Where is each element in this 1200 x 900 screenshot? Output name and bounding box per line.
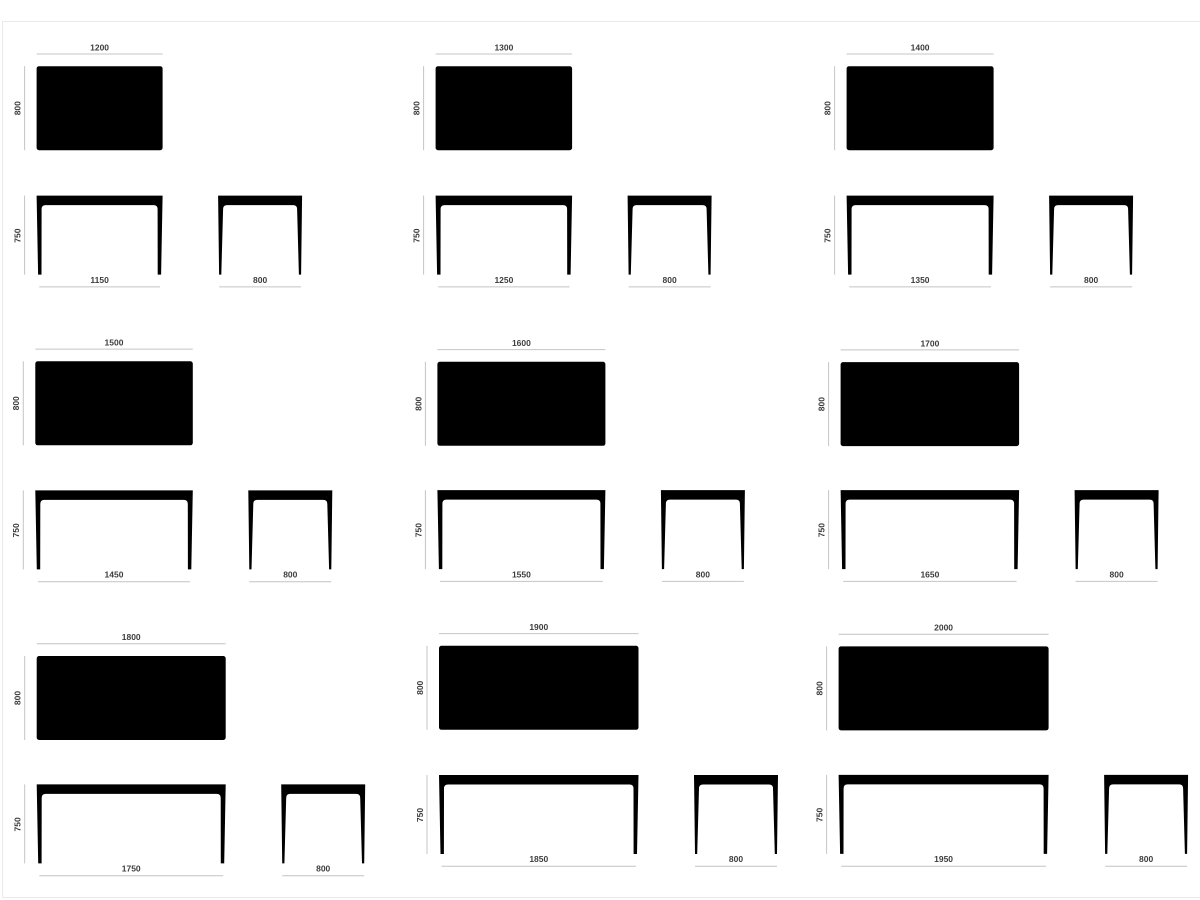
svg-text:750: 750 (412, 228, 422, 242)
svg-text:750: 750 (413, 523, 423, 537)
svg-text:1750: 1750 (122, 864, 141, 874)
svg-text:800: 800 (253, 275, 267, 285)
svg-text:1200: 1200 (90, 42, 109, 52)
svg-text:800: 800 (13, 101, 23, 115)
svg-text:1400: 1400 (911, 42, 930, 52)
svg-text:1900: 1900 (529, 622, 548, 632)
svg-text:800: 800 (415, 680, 425, 694)
svg-text:800: 800 (412, 101, 422, 115)
svg-text:1950: 1950 (934, 854, 953, 864)
svg-text:1500: 1500 (105, 338, 124, 348)
svg-text:800: 800 (696, 569, 710, 579)
svg-text:750: 750 (823, 228, 833, 242)
svg-text:1800: 1800 (122, 632, 141, 642)
svg-text:1650: 1650 (920, 569, 939, 579)
svg-text:2000: 2000 (934, 623, 953, 633)
svg-text:800: 800 (11, 396, 21, 410)
svg-text:800: 800 (13, 691, 23, 705)
svg-text:800: 800 (413, 396, 423, 410)
svg-text:1600: 1600 (512, 338, 531, 348)
svg-text:750: 750 (13, 817, 23, 831)
svg-text:750: 750 (814, 808, 824, 822)
svg-text:1250: 1250 (494, 275, 513, 285)
svg-text:750: 750 (415, 808, 425, 822)
svg-text:800: 800 (729, 854, 743, 864)
svg-text:800: 800 (316, 864, 330, 874)
svg-text:1350: 1350 (911, 275, 930, 285)
svg-text:750: 750 (11, 523, 21, 537)
svg-text:1700: 1700 (920, 338, 939, 348)
svg-text:1850: 1850 (529, 854, 548, 864)
svg-text:1450: 1450 (105, 570, 124, 580)
svg-text:800: 800 (1084, 275, 1098, 285)
svg-text:1150: 1150 (90, 275, 109, 285)
svg-text:800: 800 (817, 397, 827, 411)
svg-text:1300: 1300 (494, 42, 513, 52)
svg-text:800: 800 (823, 101, 833, 115)
svg-text:800: 800 (814, 681, 824, 695)
svg-text:800: 800 (1110, 569, 1124, 579)
svg-text:1550: 1550 (512, 569, 531, 579)
svg-text:800: 800 (1139, 854, 1153, 864)
svg-text:750: 750 (12, 228, 22, 242)
svg-text:800: 800 (663, 275, 677, 285)
svg-text:800: 800 (283, 570, 297, 580)
svg-text:750: 750 (817, 523, 827, 537)
